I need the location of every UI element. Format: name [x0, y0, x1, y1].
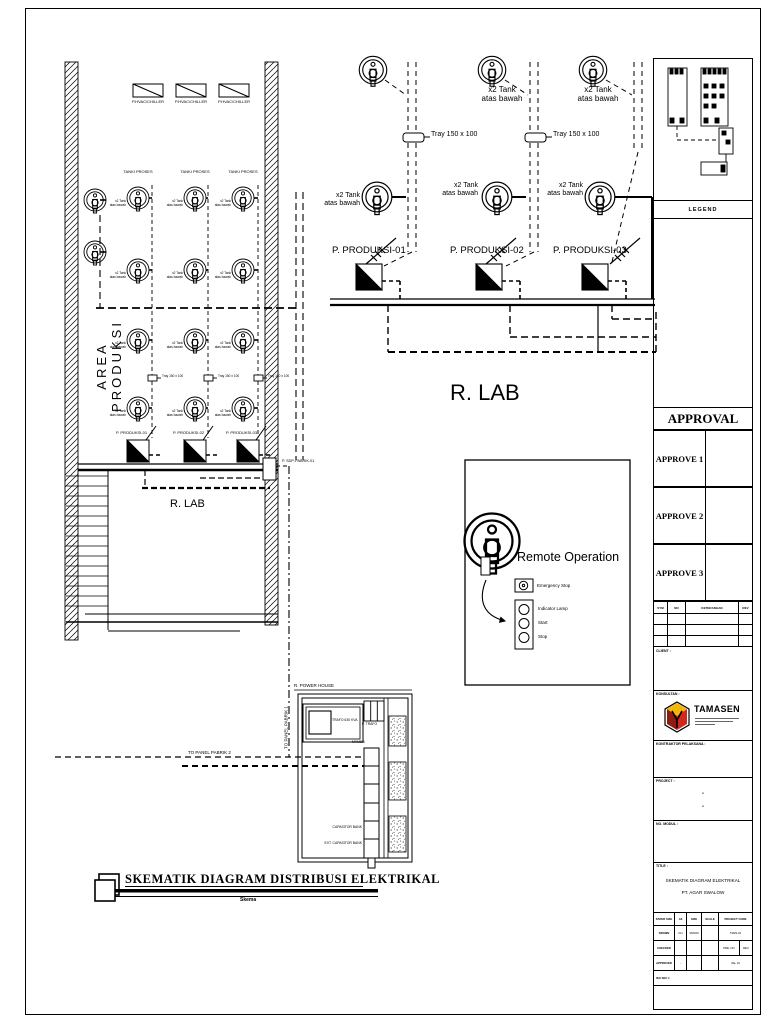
- tamasen-logo-icon: [664, 701, 690, 733]
- legend-space: [654, 219, 752, 408]
- project-value-2: -: [654, 804, 752, 810]
- tank-label: x2 Tank atas bawah: [92, 410, 126, 417]
- col-scale: SCALE: [702, 913, 719, 926]
- legend-label: LEGEND: [689, 207, 718, 213]
- columns: [384, 698, 406, 858]
- emergency-stop-label: Emergency Stop: [537, 583, 570, 588]
- client-label: CLIENT :: [656, 649, 671, 653]
- kontraktor-label: KONTRAKTOR PELAKSANA :: [656, 742, 706, 746]
- doc-title-line-1: SKEMATIK DIAGRAM ELEKTRIKAL: [654, 878, 752, 883]
- approve-3-label: APPROVE 3: [654, 545, 706, 600]
- approve-2-label: APPROVE 2: [654, 488, 706, 543]
- start-label: Start: [538, 620, 548, 625]
- legend-band: LEGEND: [654, 201, 752, 219]
- tanki-proses-label-3: TANKI PROSES: [221, 170, 265, 175]
- lamp-box-symbol: [515, 600, 533, 649]
- arrow: [482, 580, 505, 621]
- tank-label: x2 Tank atas bawah: [149, 200, 183, 207]
- col-a3: A3: [675, 913, 687, 926]
- rev-col-no: NO: [668, 602, 686, 614]
- brand-name: TAMASEN: [694, 704, 740, 714]
- approve-row-2: APPROVE 2: [654, 488, 752, 545]
- sheet-border: [26, 9, 761, 1015]
- no-modul-label: NO. MODUL :: [656, 822, 678, 826]
- produksi-label-1: P. PRODUKSI-01: [116, 431, 147, 436]
- project-label: PROJECT :: [656, 779, 675, 783]
- approve-row-1: APPROVE 1: [654, 431, 752, 488]
- tank-label: x2 Tank atas bawah: [92, 272, 126, 279]
- cell-valid: VAL.01: [719, 956, 752, 971]
- title-block: LEGEND APPROVAL APPROVE 1 APPROVE 2 APPR…: [653, 58, 753, 1010]
- sheet-footer-subtitle: Skema: [240, 898, 256, 904]
- tank-label: x2 Tank atas bawah: [573, 85, 623, 103]
- cell-rev: REV: [740, 941, 752, 955]
- produksi-label-2: P. PRODUKSI-02: [173, 431, 204, 436]
- mvmdb-lineup: [364, 748, 379, 868]
- project-value-1: -: [654, 791, 752, 797]
- tray-label: Tray 150 x 100: [162, 375, 183, 379]
- tanki-proses-label-2: TANKI PROSES: [173, 170, 217, 175]
- title-section: TITLE : SKEMATIK DIAGRAM ELEKTRIKAL PT. …: [654, 863, 752, 913]
- cell-iso: ISO SEC 1: [654, 971, 752, 986]
- tray-label: Tray 150 x 100: [431, 131, 477, 139]
- produksi-label-3: P. PRODUKSI-03: [553, 246, 627, 257]
- cell-drawn-by: 2x1: [675, 926, 687, 941]
- doc-title-line-2: PT. AGAR SWALOW: [654, 890, 752, 895]
- cell-drawn: DRAWN: [654, 926, 675, 941]
- rlab-label-mid: R. LAB: [450, 380, 520, 405]
- ext-cap-bank-label: EXT. CAPASITOR BANK: [314, 842, 362, 846]
- rev-col-rev: REV: [739, 602, 752, 614]
- sheet-footer-title: SKEMATIK DIAGRAM DISTRIBUSI ELEKTRIKAL: [125, 872, 440, 886]
- p-trafo-symbol: [364, 701, 384, 721]
- to-panel-2-label: TO PANEL PABRIK 2: [188, 750, 231, 755]
- produksi-label-2: P. PRODUKSI-02: [450, 246, 524, 257]
- cell-dash: -: [675, 956, 687, 971]
- rlab-label-left: R. LAB: [170, 498, 205, 511]
- info-table: PAPER SIZE A3 SIZE SCALE PROJECT CODE DR…: [654, 913, 752, 986]
- tank-label: x2 Tank atas bawah: [440, 182, 478, 198]
- col-paper-size: PAPER SIZE: [654, 913, 675, 926]
- rev-col-desc: KETERANGAN: [686, 602, 739, 614]
- tank-label: x2 Tank atas bawah: [149, 410, 183, 417]
- approval-label: APPROVAL: [668, 411, 739, 427]
- hvac-label-3: P.HVAC/CHILLER: [214, 100, 254, 105]
- title-label: TITLE :: [656, 864, 668, 868]
- tanki-proses-label-1: TANKI PROSES: [116, 170, 160, 175]
- trafo-label: TRAFO 630 KVA: [332, 719, 358, 723]
- approve-1-label: APPROVE 1: [654, 431, 706, 486]
- produksi-label-1: P. PRODUKSI-01: [332, 246, 406, 257]
- tray-label: Tray 150 x 100: [268, 375, 289, 379]
- tank-label: x2 Tank atas bawah: [149, 342, 183, 349]
- brand-tagline: [695, 716, 741, 727]
- col-project-code: PROJECT CODE: [719, 913, 752, 926]
- project-section: PROJECT : - -: [654, 778, 752, 821]
- stop-label: Stop: [538, 634, 547, 639]
- kontraktor-section: KONTRAKTOR PELAKSANA :: [654, 741, 752, 778]
- approval-band: APPROVAL: [654, 408, 752, 431]
- approve-row-3: APPROVE 3: [654, 545, 752, 602]
- cell-approved: APPROVED: [654, 956, 675, 971]
- drawing-sheet: { "labels": { "hvac": "P.HVAC/CHILLER", …: [0, 0, 768, 1024]
- tank-label: x2 Tank atas bawah: [197, 410, 231, 417]
- hvac-label-1: P.HVAC/CHILLER: [128, 100, 168, 105]
- tank-label: x2 Tank atas bawah: [545, 182, 583, 198]
- panel-symbols: [356, 264, 608, 290]
- tank-label: x2 Tank atas bawah: [322, 192, 360, 208]
- hvac-label-2: P.HVAC/CHILLER: [171, 100, 211, 105]
- key-plan-section: [654, 59, 752, 201]
- panel-symbols: [127, 440, 259, 462]
- sdp-panel-symbol: [263, 458, 276, 480]
- client-section: CLIENT :: [654, 648, 752, 691]
- tank-label: x2 Tank atas bawah: [197, 272, 231, 279]
- mvmdb-label: MVMDB: [352, 741, 365, 745]
- sdp-label: P. SDP-PABRIK-01: [282, 459, 314, 463]
- revision-table: SYM NO KETERANGAN REV: [654, 602, 752, 648]
- cable-tray-symbols: [403, 133, 552, 142]
- trafo-symbol: [309, 711, 331, 734]
- indicator-lamp-label: Indicator Lamp: [538, 606, 568, 611]
- konsultan-label: KONSULTAN :: [656, 692, 680, 696]
- rev-col-sym: SYM: [654, 602, 668, 614]
- tank-label: x2 Tank atas bawah: [92, 200, 126, 207]
- tank-label: x2 Tank atas bawah: [477, 85, 527, 103]
- tank-label: x2 Tank atas bawah: [149, 272, 183, 279]
- cell-date: 30/9/20: [687, 926, 702, 941]
- konsultan-section: KONSULTAN : TAMASEN: [654, 691, 752, 741]
- tank-label: x2 Tank atas bawah: [92, 342, 126, 349]
- no-modul-section: NO. MODUL :: [654, 821, 752, 863]
- emergency-stop-symbol: [515, 579, 533, 592]
- cell-code: TM29-01: [719, 926, 752, 941]
- cell-checked: CHECKED: [654, 941, 675, 956]
- remote-detail: [465, 460, 631, 685]
- produksi-label-3: P. PRODUKSI-03: [226, 431, 257, 436]
- power-house-label: R. POWER HOUSE: [294, 683, 334, 688]
- p-trafo-label: P. TRAFO: [362, 723, 377, 727]
- remote-title: Remote Operation: [517, 550, 619, 564]
- tray-label: Tray 150 x 100: [553, 131, 599, 139]
- tank-label: x2 Tank atas bawah: [197, 342, 231, 349]
- cell-pre-no: PRE. NO: [719, 941, 740, 955]
- hvac-unit-symbols: [133, 84, 249, 97]
- col-size: SIZE: [687, 913, 702, 926]
- tank-label: x2 Tank atas bawah: [197, 200, 231, 207]
- cap-bank-label: CAPASITOR BANK: [322, 826, 362, 830]
- tray-label: Tray 150 x 100: [218, 375, 239, 379]
- to-panel-1-label: TO PANEL PABRIK 1: [284, 683, 293, 773]
